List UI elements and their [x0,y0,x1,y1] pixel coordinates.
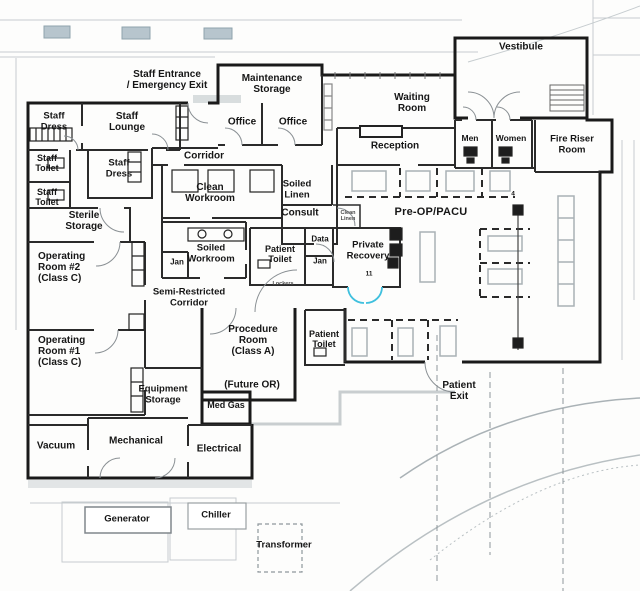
room-label-private-recovery: Private Recovery [347,240,390,261]
annotation-bay-4: 4 [511,190,515,197]
site-label-chiller: Chiller [201,511,231,522]
room-label-jan-right: Jan [313,258,327,267]
annotation-clean-linen: Clean Linen [341,210,356,222]
room-label-consult: Consult [281,207,318,218]
room-label-future-or: (Future OR) [224,379,280,390]
room-label-semi-restricted-corridor: Semi-Restricted Corridor [153,287,225,308]
room-label-waiting-room: Waiting Room [394,92,430,114]
floor-plan-drawing [0,0,640,591]
room-label-staff-dress-1: Staff Dress [41,111,67,132]
room-label-sterile-storage: Sterile Storage [65,210,102,232]
women-toilet-fixture [499,147,512,156]
room-label-data: Data [311,236,328,245]
stairs-icon [550,85,584,111]
site-label-patient-exit: Patient Exit [442,380,475,402]
room-label-vacuum: Vacuum [37,440,75,451]
room-label-reception: Reception [371,140,419,151]
room-label-staff-toilet-1: Staff Toilet [35,153,58,173]
room-label-soiled-linen: Soiled Linen [283,179,312,200]
room-label-staff-dress-2: Staff Dress [106,158,132,179]
stretchers [352,171,574,356]
room-label-patient-toilet-upper: Patient Toilet [265,244,295,264]
room-label-procedure-room: Procedure Room (Class A) [228,324,277,358]
room-label-soiled-workroom: Soiled Workroom [187,243,234,264]
room-label-maintenance-storage: Maintenance Storage [242,73,303,95]
men-toilet-fixture [464,147,477,156]
room-label-fire-riser: Fire Riser Room [550,134,594,155]
room-label-patient-toilet-lower: Patient Toilet [309,329,339,349]
room-label-jan-left: Jan [170,259,184,268]
room-label-corridor: Corridor [184,150,224,161]
room-label-operating-room-1: Operating Room #1 (Class C) [38,335,85,369]
room-label-operating-room-2: Operating Room #2 (Class C) [38,251,85,285]
room-label-staff-toilet-2: Staff Toilet [35,187,58,207]
room-label-men: Men [462,134,479,144]
floor-plan: Vestibule Waiting Room Maintenance Stora… [0,0,640,591]
site-label-staff-entrance: Staff Entrance / Emergency Exit [127,69,208,91]
room-label-mechanical: Mechanical [109,435,163,446]
site-label-generator: Generator [104,515,149,526]
room-label-women: Women [496,134,527,144]
annotation-lockers: Lockers [272,281,293,287]
site-roads [350,335,640,591]
annotation-recovery-11: 11 [366,270,373,277]
room-label-pre-op-pacu: Pre-OP/PACU [395,206,468,218]
room-label-staff-lounge: Staff Lounge [109,111,145,133]
pre-op-curtain-bays [345,168,530,360]
room-label-electrical: Electrical [197,443,241,454]
room-label-med-gas: Med Gas [207,400,245,410]
room-label-equipment-storage: Equipment Storage [138,384,187,405]
room-label-office-1: Office [228,116,256,127]
room-label-clean-workroom: Clean Workroom [185,182,235,204]
site-parking-pads [44,26,232,39]
room-label-office-2: Office [279,116,307,127]
room-label-vestibule: Vestibule [499,41,543,52]
recovery-door-swings [348,287,382,303]
site-label-transformer: Transformer [256,541,311,552]
reception-counter [360,126,402,137]
